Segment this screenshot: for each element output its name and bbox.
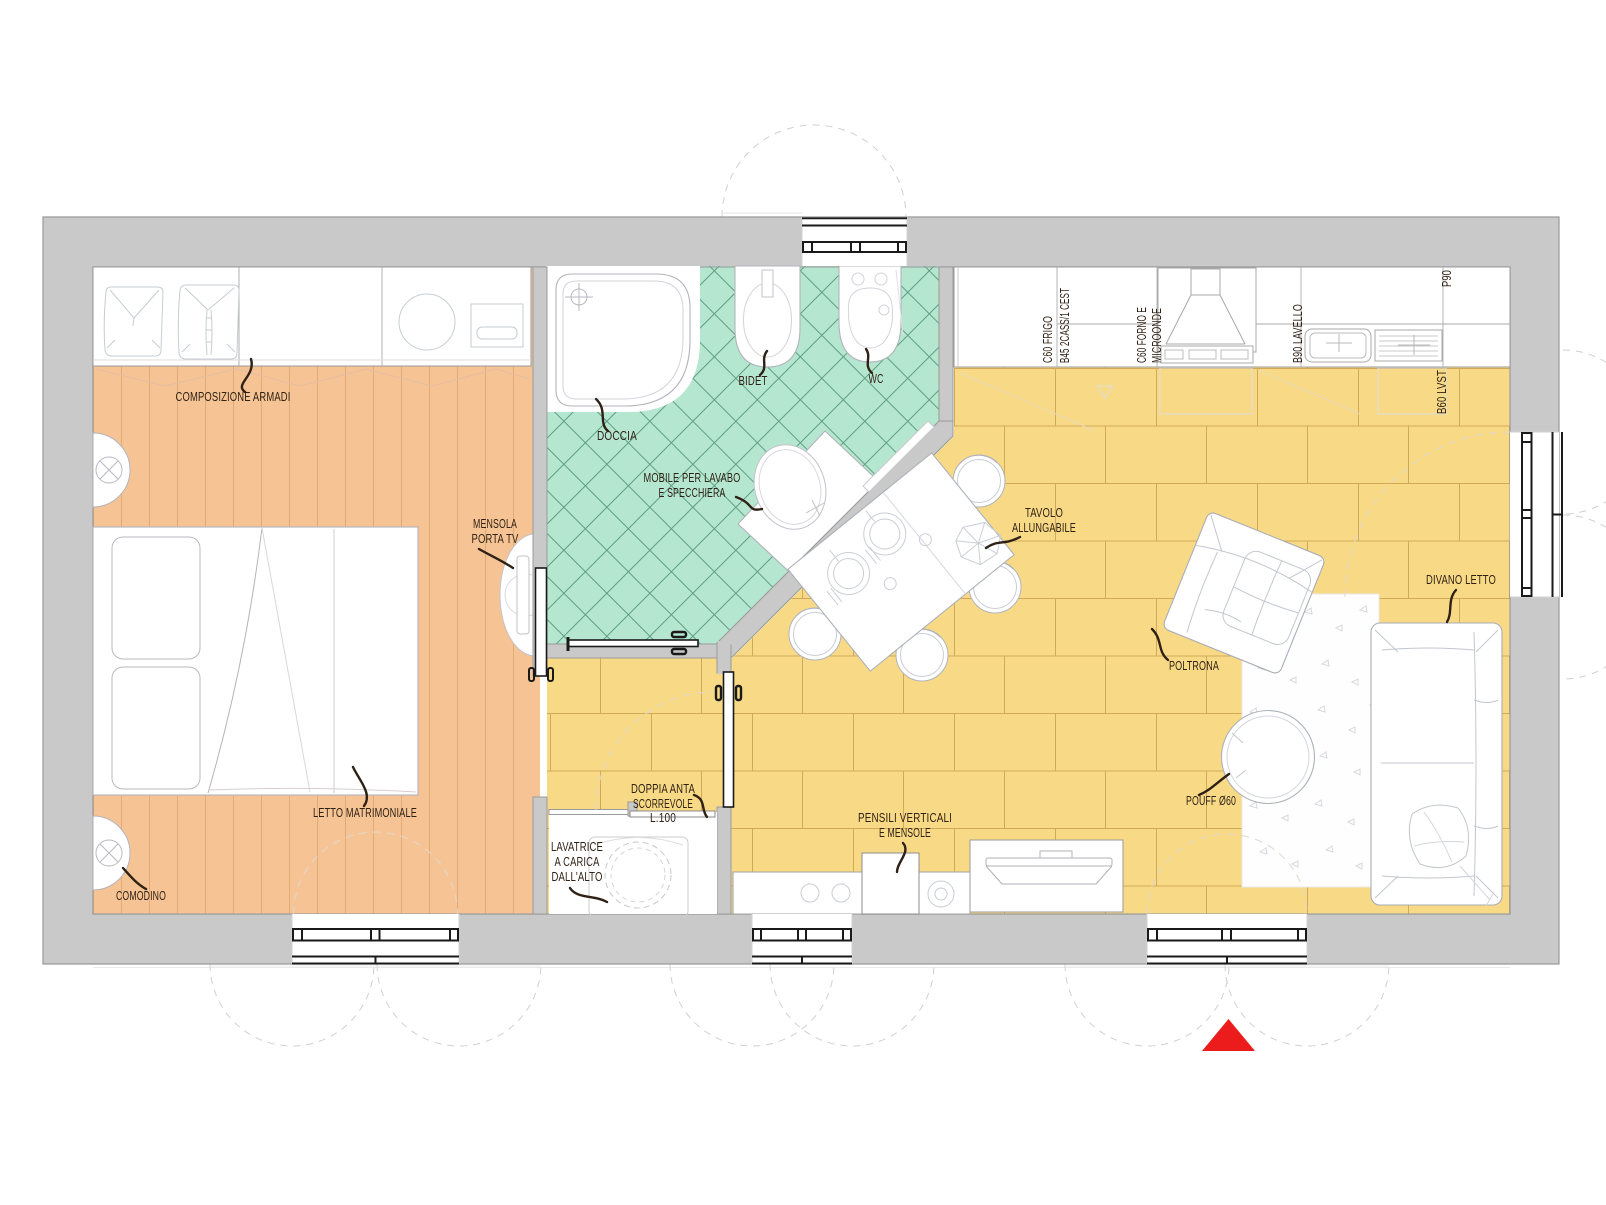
svg-text:L.100: L.100 [650, 811, 676, 825]
svg-text:C60 FRIGO: C60 FRIGO [1040, 316, 1055, 363]
svg-text:DALL'ALTO: DALL'ALTO [552, 870, 603, 884]
svg-text:LETTO MATRIMONIALE: LETTO MATRIMONIALE [313, 806, 417, 820]
svg-text:TAVOLO: TAVOLO [1025, 506, 1063, 520]
svg-text:B90 LAVELLO: B90 LAVELLO [1290, 304, 1305, 363]
svg-text:PENSILI VERTICALI: PENSILI VERTICALI [858, 811, 952, 825]
svg-text:E MENSOLE: E MENSOLE [879, 826, 931, 840]
svg-text:LAVATRICE: LAVATRICE [551, 840, 603, 854]
svg-text:A CARICA: A CARICA [555, 855, 600, 869]
svg-text:MOBILE PER LAVABO: MOBILE PER LAVABO [644, 471, 741, 485]
svg-text:POLTRONA: POLTRONA [1169, 659, 1219, 673]
svg-text:BIDET: BIDET [739, 374, 768, 388]
svg-text:POUFF Ø60: POUFF Ø60 [1186, 794, 1236, 808]
svg-text:ALLUNGABILE: ALLUNGABILE [1012, 521, 1076, 535]
svg-text:WC: WC [869, 372, 884, 386]
svg-text:COMPOSIZIONE ARMADI: COMPOSIZIONE ARMADI [176, 390, 291, 404]
svg-text:B45 2CASS/1 CEST: B45 2CASS/1 CEST [1057, 288, 1072, 363]
svg-text:DOPPIA ANTA: DOPPIA ANTA [631, 782, 695, 796]
svg-text:B60 LVST: B60 LVST [1434, 370, 1449, 414]
svg-text:DOCCIA: DOCCIA [597, 429, 637, 443]
svg-text:P90: P90 [1439, 270, 1454, 287]
svg-text:C60 FORNO E: C60 FORNO E [1134, 307, 1149, 363]
svg-text:DIVANO LETTO: DIVANO LETTO [1426, 573, 1496, 587]
svg-text:MENSOLA: MENSOLA [473, 517, 517, 531]
svg-text:PORTA TV: PORTA TV [472, 532, 519, 546]
svg-text:E SPECCHIERA: E SPECCHIERA [659, 486, 726, 500]
svg-text:COMODINO: COMODINO [116, 889, 166, 903]
svg-text:SCORREVOLE: SCORREVOLE [633, 797, 693, 811]
svg-text:MICROONDE: MICROONDE [1149, 308, 1164, 363]
